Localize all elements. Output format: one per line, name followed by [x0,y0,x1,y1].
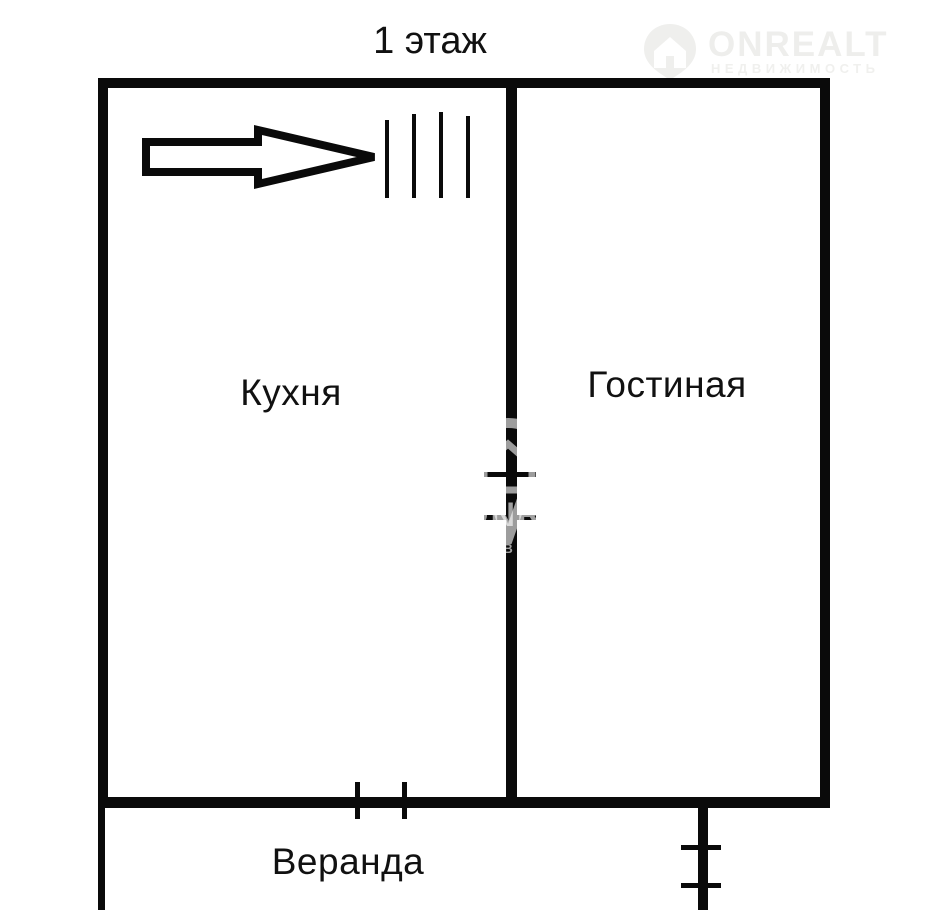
room-label-living-room: Гостиная [587,364,746,406]
door-opening-mark-veranda-right-2 [681,883,721,888]
door-opening-mark-veranda-right-1 [681,845,721,850]
hatch-line-4 [466,116,470,198]
center-watermark-subtitle: НЕДВИЖИМОСТЬ [464,541,626,556]
wall-exterior-top [98,78,830,88]
wall-exterior-right [820,78,830,808]
floor-title: 1 этаж [373,20,487,63]
entrance-direction-arrow-icon [140,119,385,197]
door-opening-mark-veranda-entry-2 [402,782,407,819]
location-pin-icon [642,23,698,81]
veranda-wall-left [98,808,105,910]
wall-exterior-bottom [98,797,830,808]
veranda-wall-right [698,808,708,910]
hatch-line-2 [412,114,416,198]
wall-exterior-left [98,78,108,808]
center-watermark-brand: ONREALT [462,496,638,535]
hatch-line-1 [385,120,389,198]
hatch-line-3 [439,112,443,198]
brand-name: ONREALT [708,25,889,65]
door-opening-mark-veranda-entry-1 [355,782,360,819]
room-label-veranda: Веранда [272,841,425,883]
floor-plan: 1 этаж ONREALT НЕДВИЖИМОСТЬ Кухня Гостин… [0,0,930,910]
room-label-kitchen: Кухня [240,372,342,414]
brand-subtitle: НЕДВИЖИМОСТЬ [711,61,879,76]
